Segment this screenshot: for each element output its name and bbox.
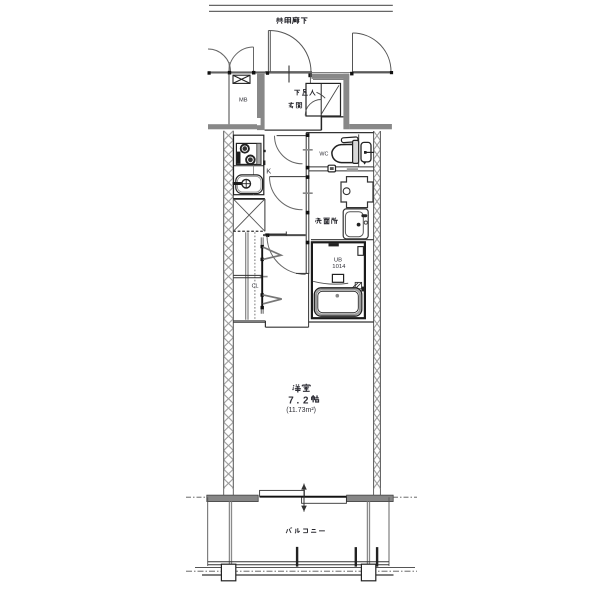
svg-text:CL: CL (252, 284, 259, 290)
svg-text:7: 7 (288, 395, 294, 406)
svg-text:MB: MB (239, 98, 248, 104)
svg-text:2: 2 (303, 395, 309, 406)
svg-text:K: K (266, 167, 271, 176)
svg-text:WC: WC (319, 151, 328, 157)
svg-text:.: . (297, 395, 300, 406)
svg-text:1014: 1014 (332, 264, 346, 270)
svg-text:(11.73m²): (11.73m²) (286, 407, 316, 414)
svg-text:UB: UB (334, 258, 342, 264)
